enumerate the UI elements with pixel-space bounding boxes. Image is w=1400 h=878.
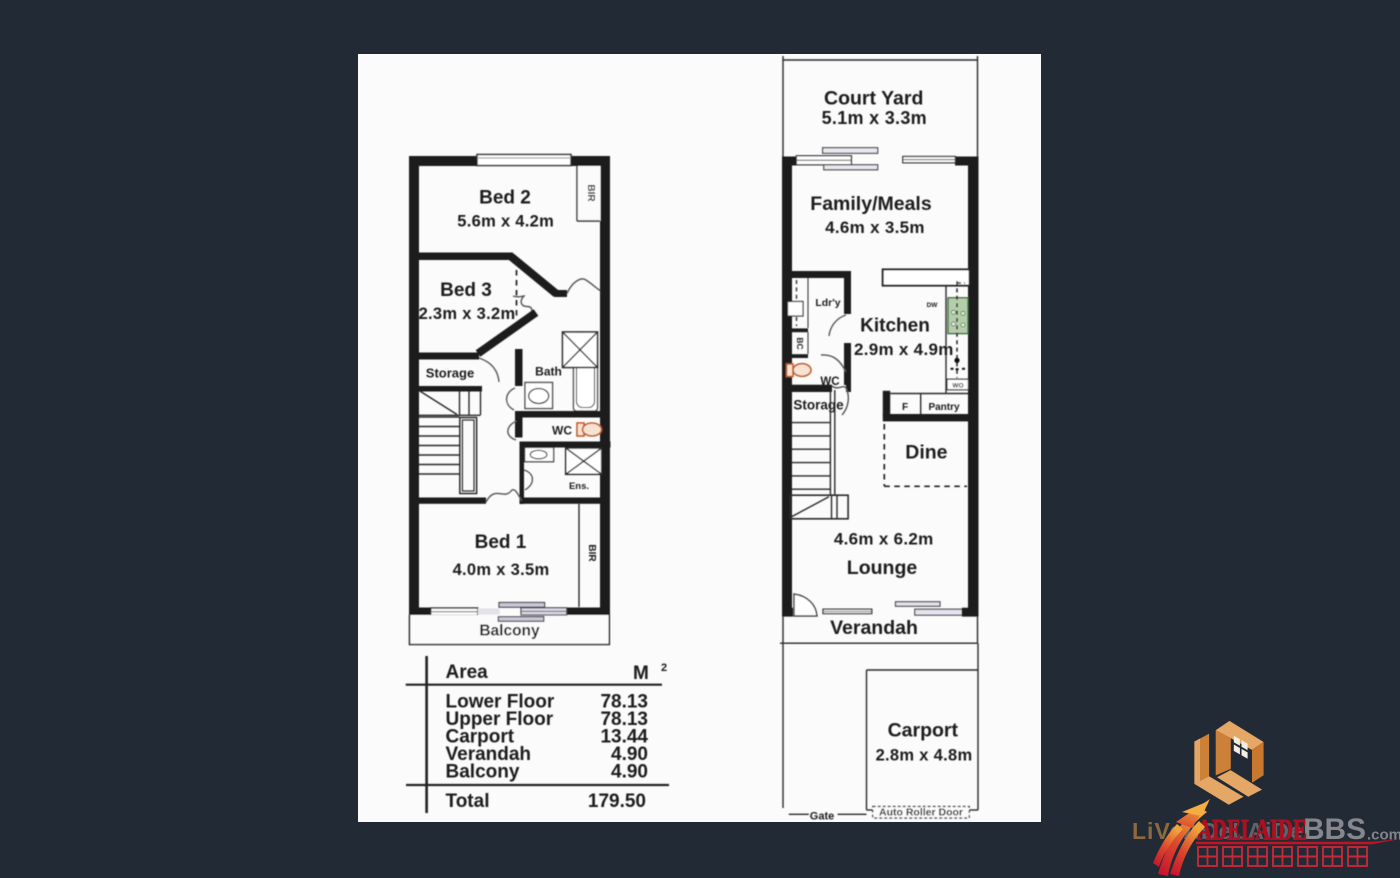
- svg-text:M: M: [633, 663, 649, 684]
- svg-text:5.6m x 4.2m: 5.6m x 4.2m: [457, 213, 554, 231]
- svg-text:BBS: BBS: [1303, 813, 1366, 846]
- svg-text:2.8m x 4.8m: 2.8m x 4.8m: [876, 747, 973, 765]
- svg-text:Kitchen: Kitchen: [860, 316, 930, 337]
- svg-text:2.3m x 3.2m: 2.3m x 3.2m: [419, 305, 516, 323]
- svg-text:Balcony: Balcony: [446, 762, 520, 783]
- svg-text:DW: DW: [927, 302, 939, 309]
- svg-text:Storage: Storage: [793, 398, 844, 413]
- svg-text:Storage: Storage: [426, 366, 474, 381]
- svg-text:Auto Roller Door: Auto Roller Door: [879, 807, 963, 819]
- svg-text:179.50: 179.50: [588, 791, 646, 812]
- svg-text:5.1m x 3.3m: 5.1m x 3.3m: [822, 108, 927, 128]
- svg-text:Lounge: Lounge: [847, 557, 918, 579]
- svg-text:Bed 1: Bed 1: [475, 532, 527, 553]
- svg-text:BC: BC: [795, 337, 805, 349]
- svg-text:Dine: Dine: [905, 442, 947, 464]
- svg-text:Bed 3: Bed 3: [440, 280, 492, 301]
- svg-text:Bed 2: Bed 2: [479, 188, 531, 209]
- svg-text:2.9m x 4.9m: 2.9m x 4.9m: [854, 340, 954, 359]
- svg-text:Ens.: Ens.: [569, 481, 589, 492]
- svg-text:ADELAIDE: ADELAIDE: [1197, 814, 1307, 847]
- svg-text:BIR: BIR: [585, 184, 596, 202]
- svg-text:2: 2: [661, 662, 667, 674]
- svg-text:F: F: [902, 402, 908, 413]
- svg-text:4.0m x 3.5m: 4.0m x 3.5m: [453, 561, 550, 579]
- svg-text:WO: WO: [952, 382, 963, 389]
- svg-text:Total: Total: [446, 791, 490, 812]
- svg-text:BIR: BIR: [586, 544, 597, 562]
- svg-text:Carport: Carport: [888, 720, 959, 742]
- svg-text:4.6m x 3.5m: 4.6m x 3.5m: [825, 218, 925, 237]
- svg-text:Balcony: Balcony: [479, 623, 540, 640]
- svg-text:WC: WC: [552, 424, 572, 438]
- svg-text:4.90: 4.90: [611, 762, 648, 783]
- svg-text:Bath: Bath: [535, 365, 562, 379]
- svg-text:Gate: Gate: [810, 811, 834, 823]
- svg-text:Pantry: Pantry: [928, 402, 960, 413]
- svg-text:Ldr'y: Ldr'y: [815, 297, 840, 309]
- svg-text:4.6m x 6.2m: 4.6m x 6.2m: [834, 530, 934, 549]
- svg-text:Family/Meals: Family/Meals: [810, 193, 932, 215]
- svg-text:Verandah: Verandah: [830, 617, 918, 639]
- svg-text:Court Yard: Court Yard: [824, 88, 923, 110]
- svg-text:Area: Area: [446, 662, 489, 683]
